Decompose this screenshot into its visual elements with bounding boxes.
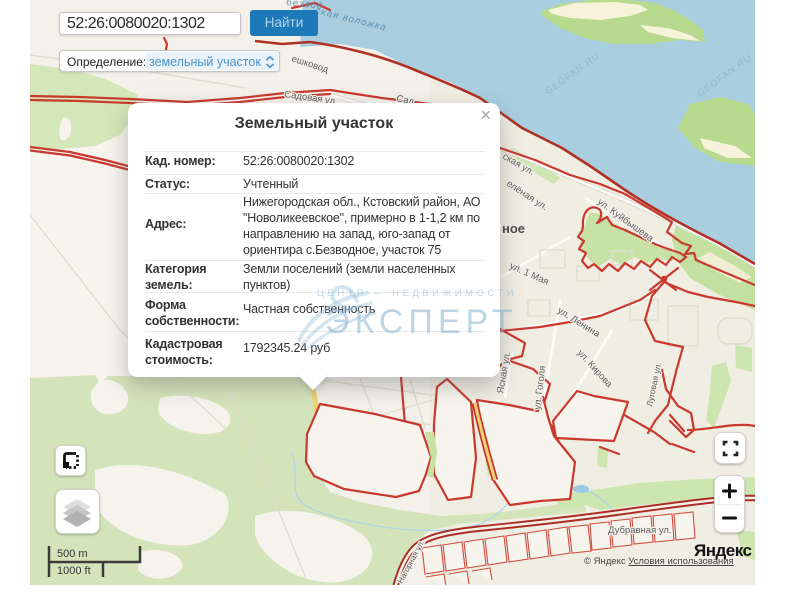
svg-text:Дубравная ул.: Дубравная ул. bbox=[608, 525, 672, 536]
svg-text:ное: ное bbox=[502, 221, 525, 236]
svg-text:1000 ft: 1000 ft bbox=[57, 565, 91, 577]
svg-text:500 m: 500 m bbox=[57, 548, 88, 560]
